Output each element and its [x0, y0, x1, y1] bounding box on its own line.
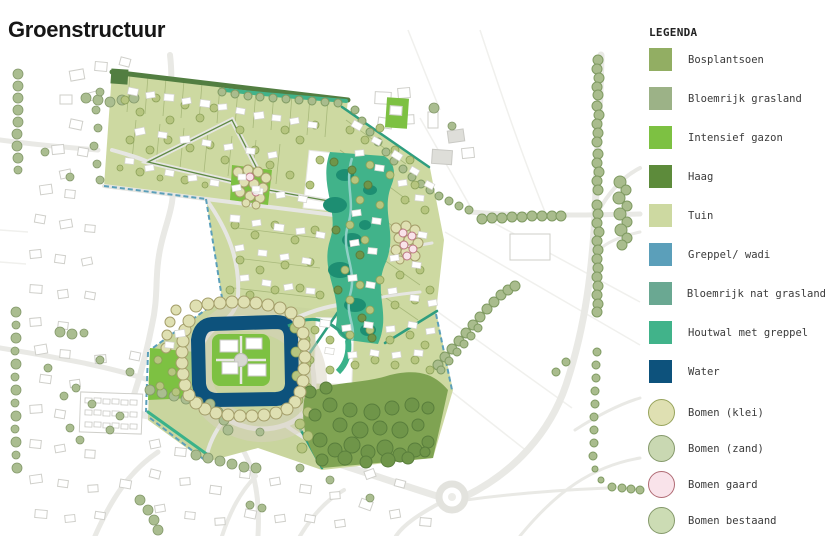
legend-item: Houtwal met greppel	[648, 321, 826, 344]
legend-item-label: Greppel/ wadi	[688, 249, 770, 261]
legend-item-label: Bloemrijk nat grasland	[687, 288, 826, 300]
legend-item-label: Houtwal met greppel	[688, 327, 808, 339]
gazon-field	[385, 97, 409, 128]
legend-items: Bosplantsoen Bloemrijk grasland Intensie…	[648, 48, 826, 534]
legend-item: Bomen gaard	[648, 471, 826, 498]
legend-item: Tuin	[648, 204, 826, 227]
legend-item: Bloemrijk grasland	[648, 87, 826, 110]
legend-panel: LEGENDA Bosplantsoen Bloemrijk grasland …	[648, 26, 826, 536]
legend-swatch	[649, 165, 672, 188]
legend-item-label: Haag	[688, 171, 713, 183]
legend-swatch	[648, 399, 675, 426]
legend-item-label: Intensief gazon	[688, 132, 783, 144]
legend-item: Bomen bestaand	[648, 507, 826, 534]
page-title: Groenstructuur	[8, 17, 165, 43]
legend-item-label: Bomen gaard	[688, 479, 758, 491]
legend-swatch	[648, 471, 675, 498]
legend-swatch	[649, 243, 672, 266]
legend-item-label: Water	[688, 366, 720, 378]
legend-swatch	[649, 321, 672, 344]
legend-item: Greppel/ wadi	[648, 243, 826, 266]
legend-item: Haag	[648, 165, 826, 188]
legend-swatch	[648, 507, 675, 534]
legend-swatch	[649, 126, 672, 149]
roundabout	[439, 484, 465, 510]
legend-item: Bloemrijk nat grasland	[648, 282, 826, 305]
legend-item: Bomen (zand)	[648, 435, 826, 462]
legend-item-label: Tuin	[688, 210, 713, 222]
legend-item: Water	[648, 360, 826, 383]
legend-swatch	[649, 87, 672, 110]
legend-item: Bomen (klei)	[648, 399, 826, 426]
legend-swatch	[649, 360, 672, 383]
legend-item-label: Bomen (klei)	[688, 407, 764, 419]
legend-item: Intensief gazon	[648, 126, 826, 149]
legend-item: Bosplantsoen	[648, 48, 826, 71]
legend-swatch	[649, 204, 672, 227]
legend-item-label: Bomen bestaand	[688, 515, 777, 527]
legend-item-label: Bosplantsoen	[688, 54, 764, 66]
legend-item-label: Bomen (zand)	[688, 443, 764, 455]
legend-swatch	[649, 282, 672, 305]
legend-swatch	[649, 48, 672, 71]
groenstructuur-plan-page: Groenstructuur LEGENDA Bosplantsoen Bloe…	[0, 0, 828, 536]
legend-item-label: Bloemrijk grasland	[688, 93, 802, 105]
legend-swatch	[648, 435, 675, 462]
legend-heading: LEGENDA	[649, 26, 826, 39]
